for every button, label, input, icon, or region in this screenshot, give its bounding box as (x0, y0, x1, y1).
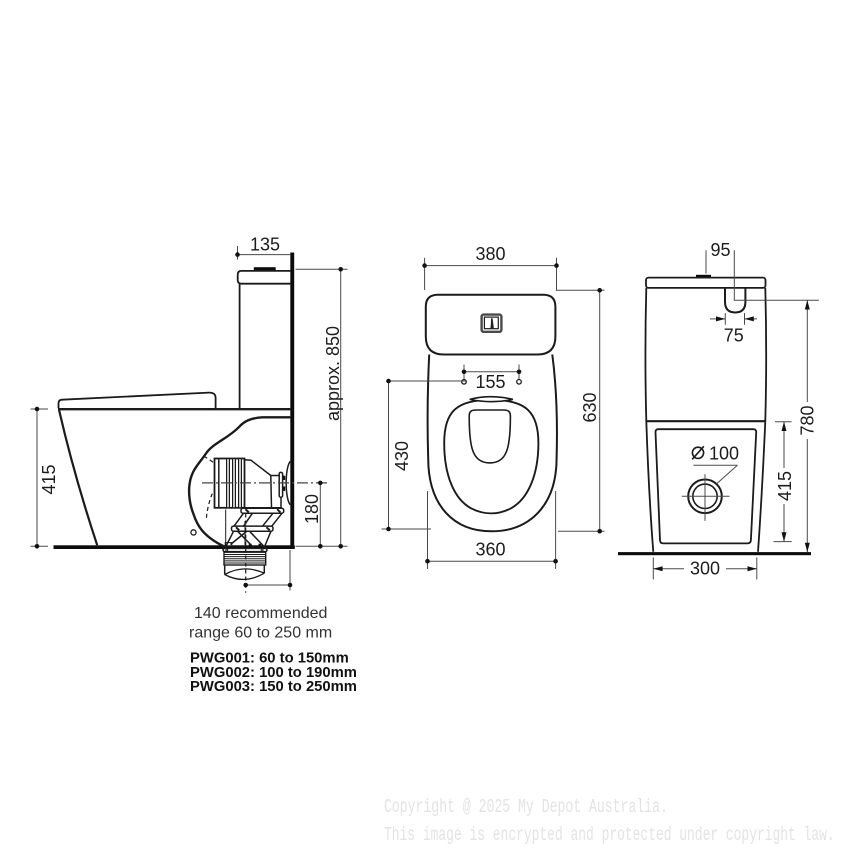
svg-text:415: 415 (39, 464, 59, 494)
svg-text:415: 415 (775, 471, 795, 501)
svg-text:Copyright @ 2025 My Depot Aust: Copyright @ 2025 My Depot Australia. (384, 796, 668, 818)
svg-text:75: 75 (724, 326, 744, 346)
svg-text:95: 95 (710, 240, 730, 260)
svg-text:180: 180 (302, 494, 322, 524)
svg-text:This image is encrypted and pr: This image is encrypted and protected un… (384, 824, 835, 846)
svg-text:140 recommended: 140 recommended (194, 605, 327, 622)
svg-text:630: 630 (580, 392, 600, 422)
svg-text:100: 100 (709, 444, 739, 464)
svg-text:approx. 850: approx. 850 (323, 326, 343, 421)
svg-text:135: 135 (250, 235, 280, 255)
svg-text:300: 300 (690, 559, 720, 579)
svg-text:780: 780 (798, 405, 818, 435)
svg-text:360: 360 (475, 540, 505, 560)
svg-text:range 60 to 250 mm: range 60 to 250 mm (189, 625, 332, 642)
svg-text:155: 155 (475, 372, 505, 392)
svg-text:380: 380 (475, 244, 505, 264)
svg-text:PWG003: 150 to 250mm: PWG003: 150 to 250mm (190, 679, 357, 695)
svg-text:430: 430 (392, 441, 412, 471)
